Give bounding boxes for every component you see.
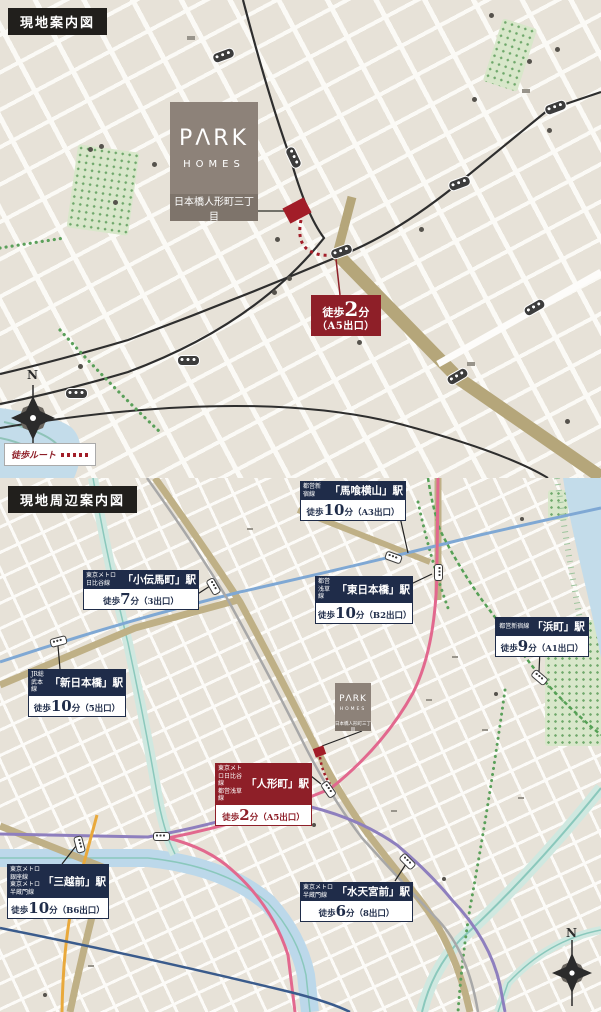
map-title-tag: 現地案内図 bbox=[8, 8, 107, 35]
area-name-box bbox=[522, 89, 530, 93]
station-walk-time: 徒歩10分（B6出口） bbox=[7, 898, 109, 919]
station-walk-time: 徒歩6分（8出口） bbox=[300, 901, 413, 922]
compass-rose bbox=[552, 940, 592, 1006]
station-label: 東京メトロ銀座線東京メトロ半蔵門線 「三越前」駅 徒歩10分（B6出口） bbox=[7, 864, 109, 919]
station-label: 都営浅草線 「東日本橋」駅 徒歩10分（B2出口） bbox=[315, 576, 413, 624]
area-name-box bbox=[187, 36, 195, 40]
station-walk-time: 徒歩10分（A3出口） bbox=[300, 500, 406, 521]
station-walk-time: 徒歩10分（5出口） bbox=[28, 696, 126, 717]
station-walk-time: 徒歩2分（A5出口） bbox=[215, 805, 312, 826]
station-line-names: 都営新宿線 bbox=[499, 623, 529, 631]
station-line-names: 東京メトロ日比谷線都営浅草線 bbox=[218, 765, 243, 803]
route-dash-sample bbox=[61, 453, 89, 457]
station-label: JR総武本線 「新日本橋」駅 徒歩10分（5出口） bbox=[28, 669, 126, 717]
station-line-names: 東京メトロ銀座線東京メトロ半蔵門線 bbox=[10, 866, 40, 896]
compass-north-label: N bbox=[27, 368, 38, 382]
area-name-box bbox=[467, 362, 475, 366]
station-name: 「浜町」駅 bbox=[532, 619, 585, 634]
compass-north-label: N bbox=[566, 926, 577, 940]
station-marker-icon bbox=[177, 355, 200, 366]
park-homes-logo-small: PΛRK HOMES 日本橋人形町三丁目 bbox=[335, 683, 371, 731]
station-name: 「人形町」駅 bbox=[246, 776, 309, 791]
station-walk-time: 徒歩7分（3出口） bbox=[83, 589, 199, 610]
brand-sub: HOMES bbox=[335, 707, 371, 712]
top-map-geometry bbox=[0, 0, 601, 478]
route-legend: 徒歩ルート bbox=[4, 443, 96, 466]
area-name-box bbox=[426, 699, 432, 701]
area-guide-map: 現地周辺案内図 PΛRK HOMES 日本橋人形町三丁目 N 都営新宿線 「馬喰… bbox=[0, 478, 601, 1012]
property-address: 日本橋人形町三丁目 bbox=[335, 722, 371, 731]
station-name: 「小伝馬町」駅 bbox=[123, 572, 197, 587]
walk-time-badge: 徒歩2分 （A5出口） bbox=[311, 295, 381, 336]
station-label: 都営新宿線 「馬喰横山」駅 徒歩10分（A3出口） bbox=[300, 481, 406, 521]
station-name: 「水天宮前」駅 bbox=[337, 884, 411, 899]
station-marker-icon bbox=[153, 832, 170, 841]
brand-name: PΛRK bbox=[170, 126, 258, 151]
site-guide-map: 現地案内図 PΛRK HOMES 日本橋人形町三丁目 徒歩2分 （A5出口） 徒… bbox=[0, 0, 601, 478]
station-line-names: 都営新宿線 bbox=[303, 483, 327, 498]
area-name-box bbox=[391, 810, 397, 812]
station-line-names: 東京メトロ日比谷線 bbox=[86, 572, 120, 587]
station-name: 「馬喰横山」駅 bbox=[330, 483, 404, 498]
bottom-map-geometry bbox=[0, 478, 601, 1012]
station-label: 東京メトロ日比谷線 「小伝馬町」駅 徒歩7分（3出口） bbox=[83, 570, 199, 610]
property-address: 日本橋人形町三丁目 bbox=[170, 194, 258, 221]
station-line-names: 都営浅草線 bbox=[318, 578, 334, 601]
location-map-flyer: 現地案内図 PΛRK HOMES 日本橋人形町三丁目 徒歩2分 （A5出口） 徒… bbox=[0, 0, 601, 1012]
park-homes-logo: PΛRK HOMES 日本橋人形町三丁目 bbox=[170, 102, 258, 221]
station-name: 「新日本橋」駅 bbox=[50, 675, 124, 690]
brand-sub: HOMES bbox=[170, 159, 258, 170]
station-marker-icon bbox=[434, 564, 443, 581]
station-marker-icon bbox=[65, 388, 88, 399]
station-line-names: 東京メトロ半蔵門線 bbox=[303, 884, 334, 899]
brand-name: PΛRK bbox=[335, 694, 371, 704]
station-label: 都営新宿線 「浜町」駅 徒歩9分（A1出口） bbox=[495, 617, 589, 657]
area-name-box bbox=[247, 528, 253, 530]
area-name-box bbox=[518, 797, 524, 799]
station-line-names: JR総武本線 bbox=[31, 671, 47, 694]
station-label: 東京メトロ日比谷線都営浅草線 「人形町」駅 徒歩2分（A5出口） bbox=[215, 763, 312, 826]
map-title-tag: 現地周辺案内図 bbox=[8, 486, 137, 513]
station-name: 「東日本橋」駅 bbox=[337, 582, 411, 597]
area-name-box bbox=[88, 965, 94, 967]
area-name-box bbox=[482, 729, 488, 731]
area-name-box bbox=[452, 656, 458, 658]
station-walk-time: 徒歩10分（B2出口） bbox=[315, 603, 413, 624]
station-name: 「三越前」駅 bbox=[43, 874, 106, 889]
station-label: 東京メトロ半蔵門線 「水天宮前」駅 徒歩6分（8出口） bbox=[300, 882, 413, 922]
station-walk-time: 徒歩9分（A1出口） bbox=[495, 636, 589, 657]
